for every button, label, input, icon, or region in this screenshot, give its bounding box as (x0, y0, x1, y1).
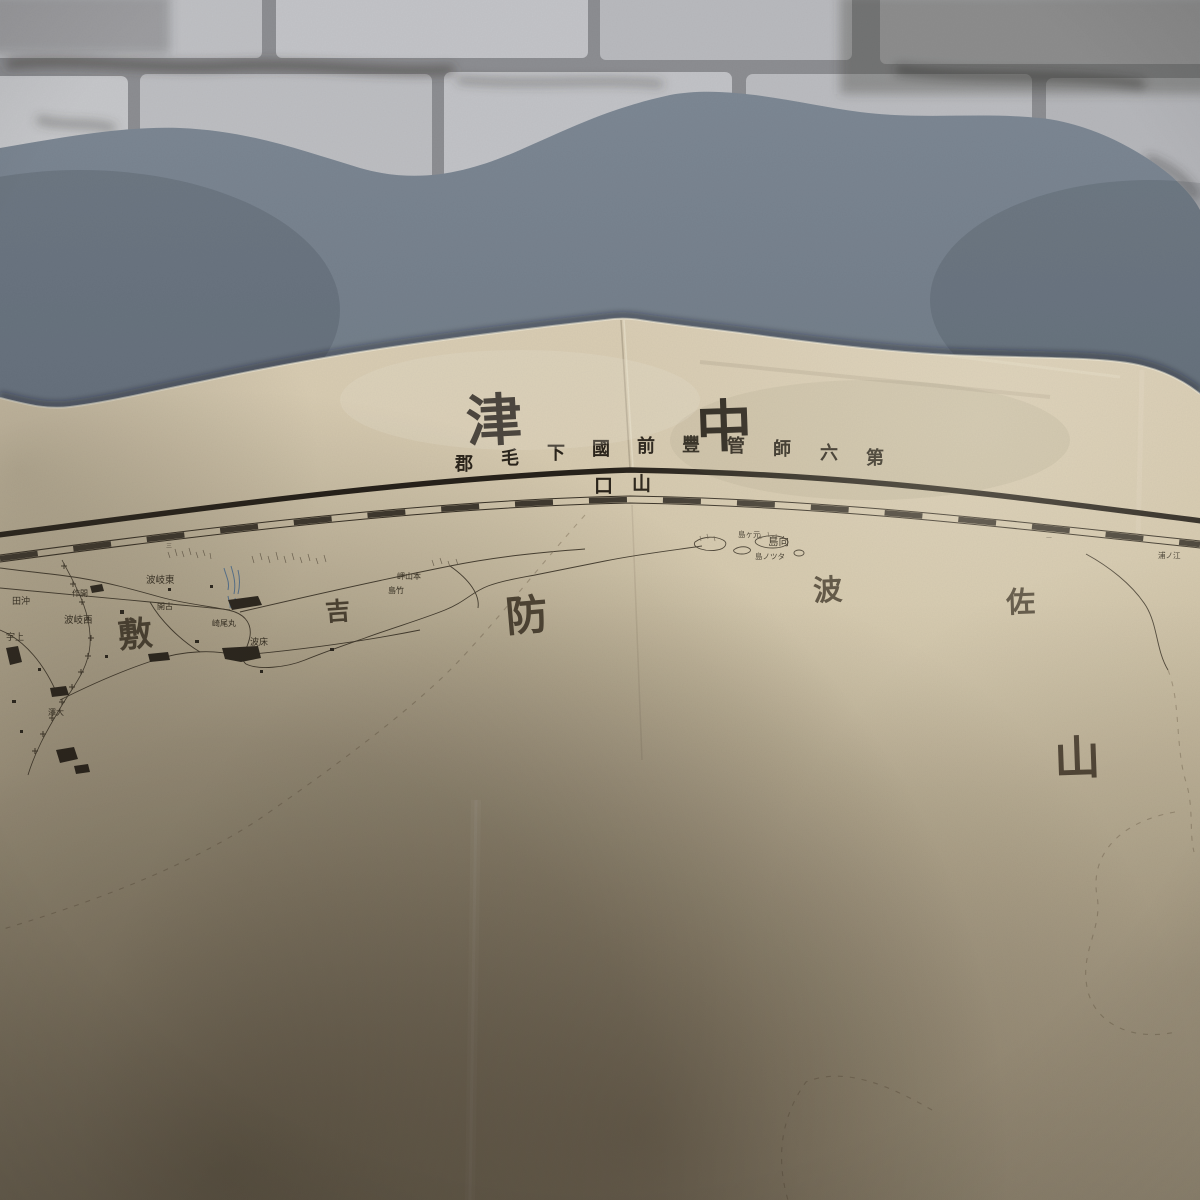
photo-vignette (0, 0, 1200, 1200)
photo-of-old-map: 津 中 郡 毛 下 國 前 豐 管 師 六 第 口 山 三 (0, 0, 1200, 1200)
